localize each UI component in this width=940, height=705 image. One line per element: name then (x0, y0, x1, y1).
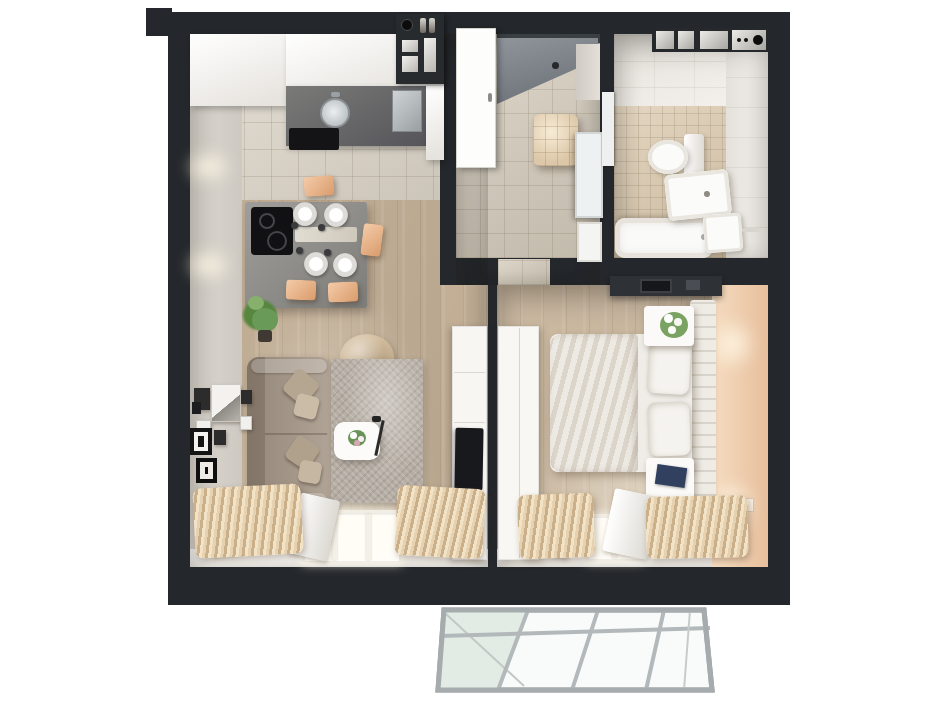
living-window-sill (190, 549, 488, 567)
hall-bathroom-bottom-wall (440, 258, 768, 285)
living-room-wood-floor-extension (440, 285, 488, 567)
bedroom-wood-floor (497, 285, 768, 567)
hallway-tile-floor (456, 34, 600, 258)
wall-notch (146, 8, 172, 36)
bedroom-doorway-passage (498, 259, 550, 285)
bathroom-left-wall (600, 34, 614, 258)
bedroom-window-sill (497, 549, 768, 567)
bathroom-mosaic-floor (614, 106, 726, 258)
glazed-balcony (432, 602, 718, 698)
floor-plan-render (0, 0, 940, 705)
hall-left-wall-upper (440, 34, 456, 92)
living-room-left-wall (190, 100, 242, 550)
living-bedroom-divider-wall (488, 285, 497, 567)
bathroom-wall-tiles-right (726, 34, 768, 258)
